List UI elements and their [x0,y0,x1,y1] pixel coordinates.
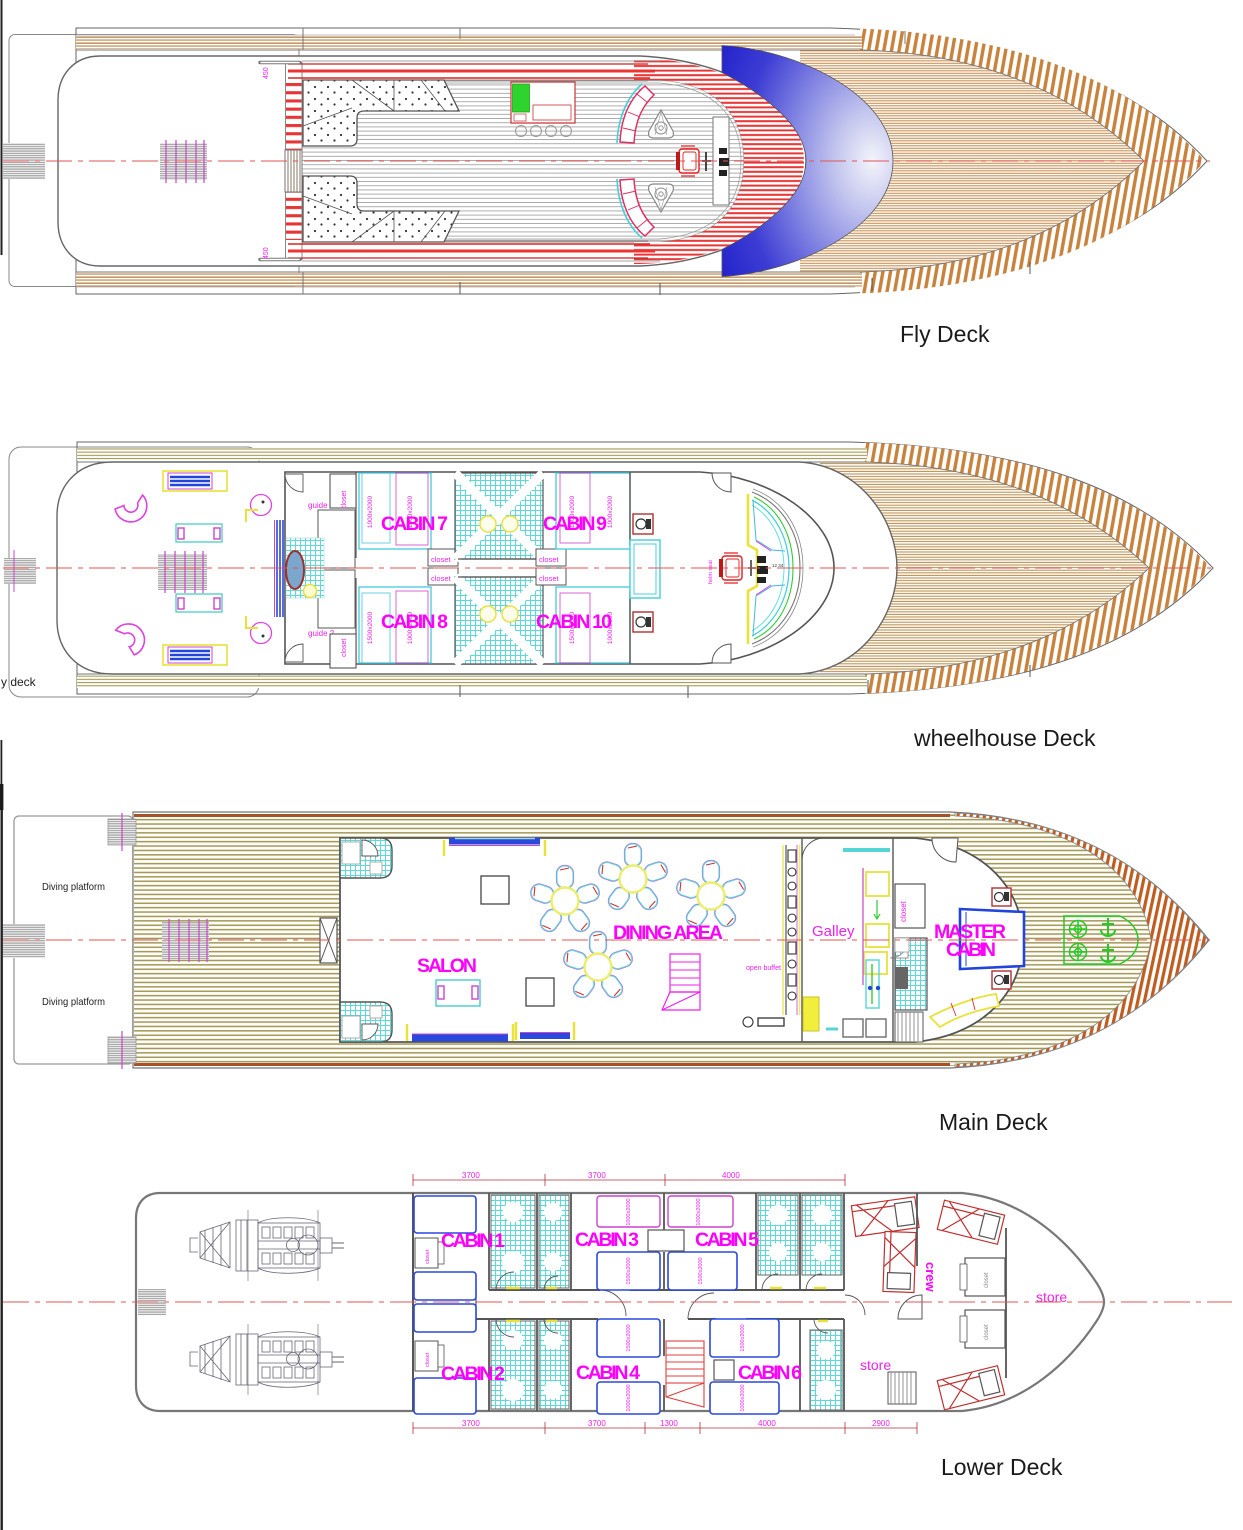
svg-text:CABIN: CABIN [946,939,996,961]
svg-text:1500x2000: 1500x2000 [740,1324,746,1351]
svg-text:1000x2000: 1000x2000 [607,496,614,529]
svg-text:closet: closet [425,1249,431,1264]
svg-text:4000: 4000 [758,1419,776,1428]
svg-text:closet: closet [899,900,908,922]
svg-text:closet: closet [984,1324,990,1340]
svg-text:1300: 1300 [660,1419,678,1428]
svg-text:closet: closet [539,574,560,583]
svg-text:closet: closet [984,1272,990,1288]
svg-text:1500x2000: 1500x2000 [698,1257,704,1284]
svg-text:open buffet: open buffet [746,965,781,972]
svg-text:CABIN 9: CABIN 9 [543,513,607,535]
svg-text:store: store [860,1357,891,1373]
svg-text:Lower Deck: Lower Deck [941,1454,1063,1480]
svg-text:4000: 4000 [722,1171,740,1180]
svg-text:CABIN 5: CABIN 5 [695,1229,759,1251]
svg-text:1500x2000: 1500x2000 [626,1324,632,1351]
svg-text:helm seat: helm seat [708,560,714,584]
svg-text:1000x2000: 1000x2000 [626,1384,632,1411]
svg-text:Diving platform: Diving platform [42,996,105,1008]
svg-text:CABIN 8: CABIN 8 [381,611,448,633]
svg-text:y deck: y deck [1,675,37,689]
svg-text:1500x2000: 1500x2000 [367,612,374,645]
svg-text:closet: closet [341,491,348,509]
svg-text:closet: closet [425,1352,431,1367]
svg-text:Main Deck: Main Deck [939,1109,1048,1135]
svg-text:1000x2000: 1000x2000 [626,1198,632,1225]
svg-text:3700: 3700 [588,1419,606,1428]
svg-text:CABIN 6: CABIN 6 [738,1362,802,1384]
svg-text:closet: closet [341,639,348,657]
svg-text:closet: closet [431,574,452,583]
svg-text:3700: 3700 [462,1171,480,1180]
svg-text:store: store [1036,1289,1067,1305]
svg-text:Diving platform: Diving platform [42,881,105,893]
svg-text:crew: crew [923,1262,938,1293]
svg-text:2900: 2900 [872,1419,890,1428]
svg-text:Galley: Galley [812,923,855,940]
svg-text:DINING AREA: DINING AREA [613,922,723,944]
svg-text:closet: closet [431,555,452,564]
svg-text:CABIN 10: CABIN 10 [536,611,612,633]
svg-text:CABIN 4: CABIN 4 [576,1362,640,1384]
svg-text:450: 450 [263,67,270,79]
svg-text:CABIN 7: CABIN 7 [381,513,448,535]
svg-text:Fly Deck: Fly Deck [900,321,990,347]
svg-text:wheelhouse Deck: wheelhouse Deck [913,725,1096,751]
svg-text:1500x2000: 1500x2000 [626,1257,632,1284]
svg-text:1000x2000: 1000x2000 [740,1384,746,1411]
svg-text:450: 450 [263,247,270,259]
svg-text:1000x2000: 1000x2000 [696,1198,702,1225]
svg-text:CABIN 1: CABIN 1 [441,1230,505,1252]
svg-text:CABIN 3: CABIN 3 [575,1229,639,1251]
svg-text:3700: 3700 [588,1171,606,1180]
svg-text:1000x2000: 1000x2000 [367,496,374,529]
svg-text:12 34: 12 34 [772,563,784,568]
svg-text:CABIN 2: CABIN 2 [441,1363,505,1385]
svg-text:3700: 3700 [462,1419,480,1428]
svg-text:closet: closet [539,555,560,564]
svg-text:SALON: SALON [417,955,477,977]
